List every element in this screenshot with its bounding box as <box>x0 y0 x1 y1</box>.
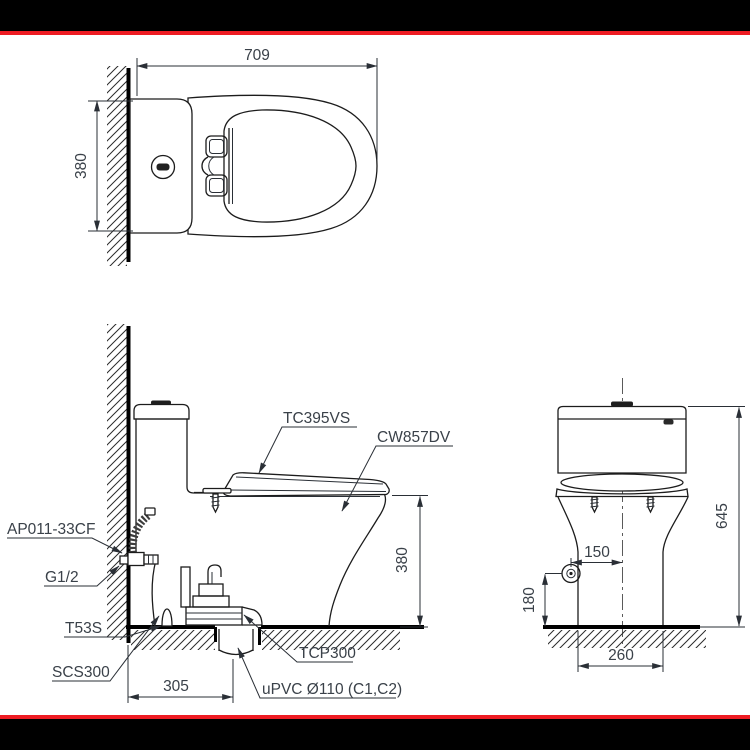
side-wall-hatch <box>107 324 127 640</box>
dim-front-height-group: 645 <box>688 407 745 628</box>
label-bowl-model: CW857DV <box>377 429 451 446</box>
technical-drawing: 709 380 <box>0 0 750 750</box>
bowl-front-curve <box>329 492 385 626</box>
label-outlet-fitting: TCP300 <box>299 645 356 662</box>
dim-side-outlet-offset-group: 305 <box>128 645 233 703</box>
label-seal: T53S <box>65 620 102 637</box>
dim-front-supply-offset: 150 <box>584 544 610 561</box>
drain-pipe <box>219 629 253 655</box>
brand-logo-mark <box>664 420 674 425</box>
dim-top-depth: 380 <box>73 153 90 179</box>
flush-button-slot <box>157 164 170 171</box>
supply-valve-front <box>562 565 580 583</box>
bolt-cap <box>162 609 172 626</box>
dim-top-width: 709 <box>244 47 270 64</box>
label-drain-pipe: uPVC Ø110 (C1,C2) <box>262 681 402 698</box>
wall-hatch <box>107 66 127 266</box>
side-view: 380 305 TC395VS CW857DV AP011-33CF G1/2 <box>7 324 453 703</box>
label-supply-thread: G1/2 <box>45 569 79 586</box>
dim-side-seat-height-group: 380 <box>392 496 428 628</box>
callouts: TC395VS CW857DV AP011-33CF G1/2 T53S SCS… <box>7 410 453 698</box>
top-view: 709 380 <box>73 47 377 266</box>
dim-front-supply-height: 180 <box>521 587 538 613</box>
dim-front-supply-height-group: 180 <box>521 574 562 627</box>
dim-front-height: 645 <box>714 503 731 529</box>
label-bolt-caps: SCS300 <box>52 664 110 681</box>
label-supply-hose: AP011-33CF <box>7 521 95 538</box>
front-floor-hatch <box>548 630 706 648</box>
trap-assembly <box>181 565 262 625</box>
hinge-bolt-side <box>203 489 231 513</box>
pedestal-left <box>558 497 578 625</box>
page: 709 380 <box>0 0 750 750</box>
dim-side-seat-height: 380 <box>394 547 411 573</box>
tank-lid-knob-front <box>611 402 633 407</box>
bowl-outline-plan <box>188 95 377 236</box>
tank-front <box>558 402 686 474</box>
dim-front-base-width: 260 <box>608 647 634 664</box>
label-seat-model: TC395VS <box>283 410 350 427</box>
front-view: 645 150 180 260 <box>521 378 745 672</box>
seat-lid-side <box>223 473 389 496</box>
side-floor-hatch-left <box>131 630 215 650</box>
dim-side-outlet-offset: 305 <box>163 678 189 695</box>
pedestal-right <box>663 497 688 625</box>
